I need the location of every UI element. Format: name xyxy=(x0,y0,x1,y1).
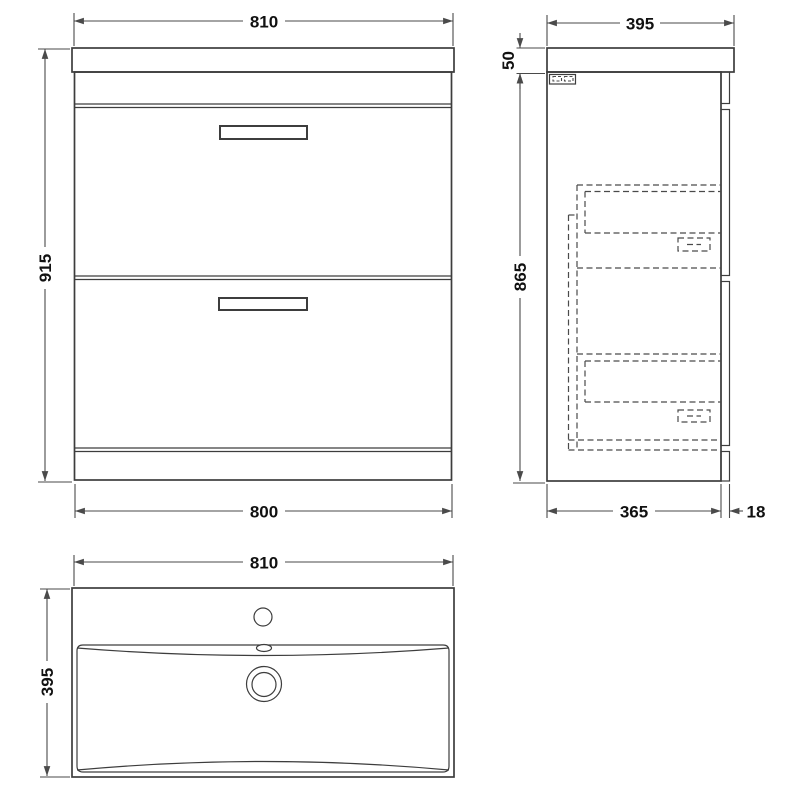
dim-label-365: 365 xyxy=(620,503,648,522)
dim-label-18: 18 xyxy=(747,503,766,522)
dim-label-865: 865 xyxy=(511,263,530,291)
dim-label-915: 915 xyxy=(36,254,55,282)
overflow-slot xyxy=(257,645,272,652)
background xyxy=(0,0,800,800)
dim-label-810-plan: 810 xyxy=(250,554,278,573)
dim-label-810: 810 xyxy=(250,13,278,32)
drawing-canvas: 810 915 800 xyxy=(0,0,800,800)
dim-label-50: 50 xyxy=(499,51,518,70)
dim-label-395: 395 xyxy=(626,15,654,34)
dim-label-395-plan: 395 xyxy=(38,668,57,696)
dim-label-800: 800 xyxy=(250,503,278,522)
vanity-technical-drawing: 810 915 800 xyxy=(0,0,800,800)
